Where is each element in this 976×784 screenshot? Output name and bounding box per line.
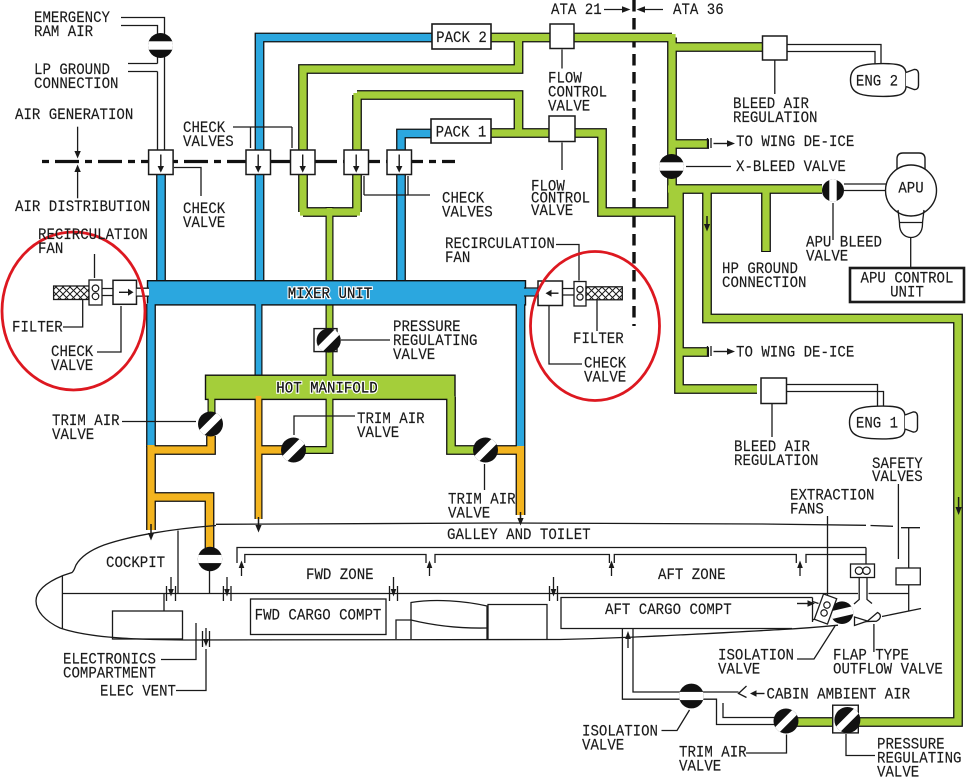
svg-text:FWD ZONE: FWD ZONE — [306, 566, 374, 584]
svg-text:AIR DISTRIBUTION: AIR DISTRIBUTION — [15, 198, 150, 216]
svg-text:CONNECTION: CONNECTION — [34, 75, 119, 93]
svg-text:VALVE: VALVE — [183, 214, 225, 232]
svg-text:FILTER: FILTER — [573, 330, 624, 348]
svg-text:VALVE: VALVE — [357, 424, 399, 442]
svg-text:REGULATION: REGULATION — [733, 109, 818, 127]
svg-text:UNIT: UNIT — [890, 284, 924, 302]
svg-text:MIXER UNIT: MIXER UNIT — [288, 285, 373, 303]
svg-text:VALVES: VALVES — [442, 204, 493, 222]
svg-text:VALVE: VALVE — [448, 504, 490, 522]
svg-text:OUTFLOW VALVE: OUTFLOW VALVE — [833, 660, 943, 678]
svg-text:APU: APU — [898, 180, 923, 198]
svg-text:GALLEY AND TOILET: GALLEY AND TOILET — [447, 526, 591, 544]
svg-text:VALVES: VALVES — [872, 468, 923, 486]
svg-text:FANS: FANS — [790, 500, 824, 518]
svg-text:COMPARTMENT: COMPARTMENT — [63, 664, 156, 682]
svg-text:ATA 36: ATA 36 — [673, 1, 724, 19]
svg-text:VALVE: VALVE — [877, 763, 919, 781]
svg-text:VALVE: VALVE — [393, 346, 435, 364]
svg-text:FAN: FAN — [38, 240, 63, 258]
svg-text:HOT MANIFOLD: HOT MANIFOLD — [276, 380, 377, 398]
svg-text:CABIN AMBIENT AIR: CABIN AMBIENT AIR — [767, 686, 911, 704]
svg-text:VALVE: VALVE — [582, 736, 624, 754]
svg-text:VALVE: VALVE — [531, 202, 573, 220]
svg-text:VALVE: VALVE — [52, 426, 94, 444]
svg-text:TO WING DE-ICE: TO WING DE-ICE — [736, 133, 854, 151]
svg-text:ATA 21: ATA 21 — [551, 1, 602, 19]
svg-text:AIR GENERATION: AIR GENERATION — [15, 106, 133, 124]
svg-text:CONNECTION: CONNECTION — [722, 274, 807, 292]
svg-text:VALVE: VALVE — [548, 98, 590, 116]
svg-text:X-BLEED VALVE: X-BLEED VALVE — [736, 158, 846, 176]
svg-text:VALVE: VALVE — [679, 758, 721, 776]
svg-text:AFT ZONE: AFT ZONE — [658, 566, 726, 584]
svg-text:VALVE: VALVE — [51, 357, 93, 375]
svg-text:PACK 2: PACK 2 — [436, 29, 487, 47]
svg-text:ENG 1: ENG 1 — [856, 415, 898, 433]
svg-text:FAN: FAN — [445, 249, 470, 267]
svg-text:TO WING DE-ICE: TO WING DE-ICE — [736, 343, 854, 361]
svg-text:AFT CARGO COMPT: AFT CARGO COMPT — [605, 601, 732, 619]
svg-text:VALVE: VALVE — [806, 247, 848, 265]
svg-text:COCKPIT: COCKPIT — [106, 554, 165, 572]
svg-text:FILTER: FILTER — [12, 319, 63, 337]
svg-text:FWD CARGO COMPT: FWD CARGO COMPT — [255, 607, 382, 625]
svg-text:RAM AIR: RAM AIR — [34, 23, 93, 41]
svg-text:VALVES: VALVES — [183, 133, 234, 151]
svg-text:REGULATION: REGULATION — [734, 452, 819, 470]
svg-text:PACK 1: PACK 1 — [436, 124, 487, 142]
svg-text:ELEC VENT: ELEC VENT — [100, 682, 176, 700]
svg-text:VALVE: VALVE — [584, 369, 626, 387]
svg-text:ENG 2: ENG 2 — [856, 73, 898, 91]
svg-text:VALVE: VALVE — [718, 660, 760, 678]
